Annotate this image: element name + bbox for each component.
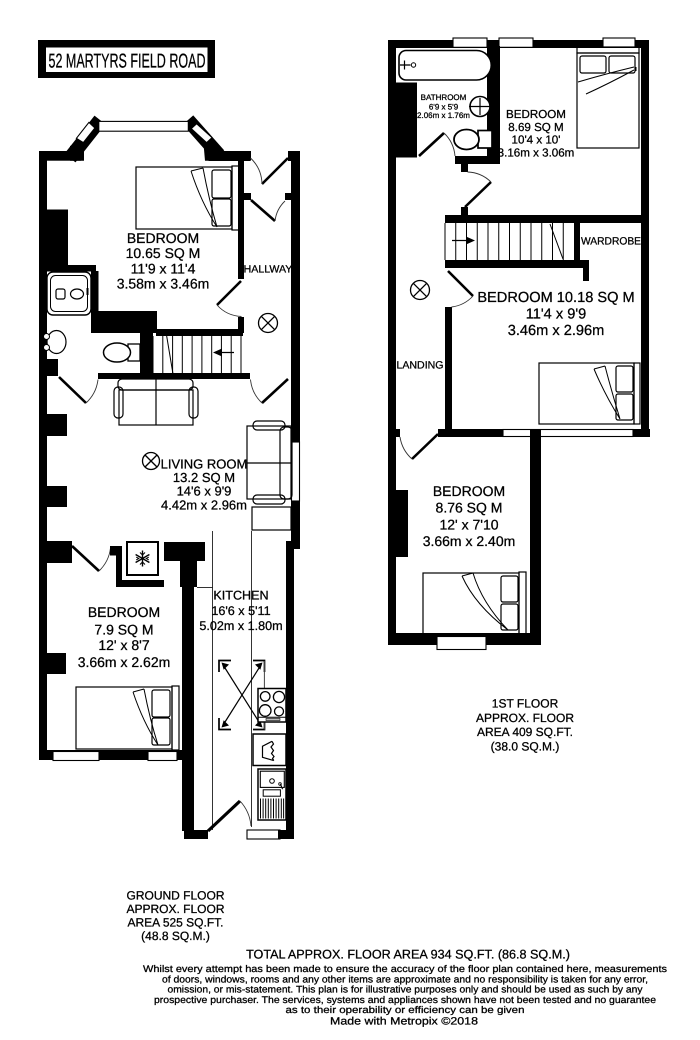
- svg-text:AREA 409 SQ.FT.: AREA 409 SQ.FT.: [477, 725, 573, 739]
- svg-text:52 MARTYRS FIELD ROAD: 52 MARTYRS FIELD ROAD: [49, 51, 206, 73]
- svg-text:16'6 x 5'11: 16'6 x 5'11: [211, 604, 270, 618]
- svg-text:Made with Metropix ©2018: Made with Metropix ©2018: [330, 1016, 478, 1028]
- svg-text:7.9 SQ M: 7.9 SQ M: [94, 622, 153, 638]
- svg-text:11'9 x 11'4: 11'9 x 11'4: [131, 260, 196, 276]
- svg-text:BEDROOM: BEDROOM: [433, 483, 505, 499]
- svg-text:12' x 8'7: 12' x 8'7: [98, 637, 149, 653]
- svg-text:LANDING: LANDING: [396, 360, 443, 372]
- svg-text:3.66m x 2.40m: 3.66m x 2.40m: [423, 533, 516, 549]
- svg-text:(38.0 SQ.M.): (38.0 SQ.M.): [491, 740, 560, 754]
- svg-text:2.06m x 1.76m: 2.06m x 1.76m: [417, 111, 470, 120]
- svg-text:BEDROOM 10.18 SQ M: BEDROOM 10.18 SQ M: [477, 290, 634, 306]
- svg-text:APPROX. FLOOR: APPROX. FLOOR: [476, 711, 574, 725]
- svg-text:TOTAL APPROX. FLOOR AREA 934 S: TOTAL APPROX. FLOOR AREA 934 SQ.FT. (86.…: [246, 948, 570, 962]
- svg-text:3.58m x 3.46m: 3.58m x 3.46m: [117, 276, 210, 292]
- svg-text:(48.8 SQ.M.): (48.8 SQ.M.): [141, 929, 210, 943]
- svg-text:4.42m x 2.96m: 4.42m x 2.96m: [161, 498, 247, 513]
- svg-text:BEDROOM: BEDROOM: [506, 108, 566, 121]
- svg-text:BEDROOM: BEDROOM: [127, 230, 199, 246]
- svg-text:HALLWAY: HALLWAY: [244, 263, 293, 275]
- svg-text:10.65 SQ M: 10.65 SQ M: [126, 245, 201, 261]
- svg-text:11'4 x 9'9: 11'4 x 9'9: [526, 307, 586, 323]
- svg-text:BATHROOM: BATHROOM: [421, 93, 467, 102]
- svg-text:10'4 x 10': 10'4 x 10': [512, 134, 561, 147]
- svg-text:8.76 SQ M: 8.76 SQ M: [436, 500, 503, 516]
- svg-text:AREA 525 SQ.FT.: AREA 525 SQ.FT.: [127, 916, 223, 930]
- svg-text:8.69 SQ M: 8.69 SQ M: [508, 121, 563, 134]
- svg-text:GROUND FLOOR: GROUND FLOOR: [126, 889, 224, 903]
- svg-text:BEDROOM: BEDROOM: [88, 604, 160, 620]
- svg-text:14'6 x 9'9: 14'6 x 9'9: [177, 484, 232, 499]
- svg-text:3.16m x 3.06m: 3.16m x 3.06m: [498, 147, 575, 160]
- svg-text:WARDROBE: WARDROBE: [581, 236, 641, 248]
- svg-text:3.46m x 2.96m: 3.46m x 2.96m: [508, 323, 605, 339]
- svg-text:APPROX. FLOOR: APPROX. FLOOR: [126, 902, 224, 916]
- svg-text:1ST FLOOR: 1ST FLOOR: [492, 697, 559, 711]
- svg-text:5.02m x 1.80m: 5.02m x 1.80m: [199, 619, 282, 633]
- svg-text:3.66m x 2.62m: 3.66m x 2.62m: [78, 654, 171, 670]
- svg-text:KITCHEN: KITCHEN: [213, 589, 268, 603]
- svg-text:12' x 7'10: 12' x 7'10: [439, 516, 498, 532]
